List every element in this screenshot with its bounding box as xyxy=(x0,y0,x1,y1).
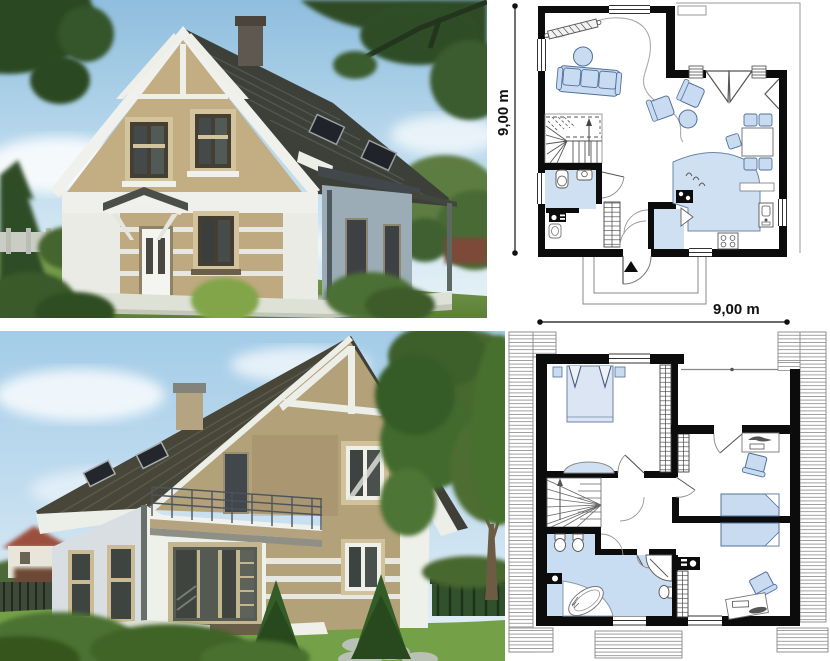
svg-text:9,00 m: 9,00 m xyxy=(713,301,760,318)
svg-text:9,00 m: 9,00 m xyxy=(495,89,512,136)
